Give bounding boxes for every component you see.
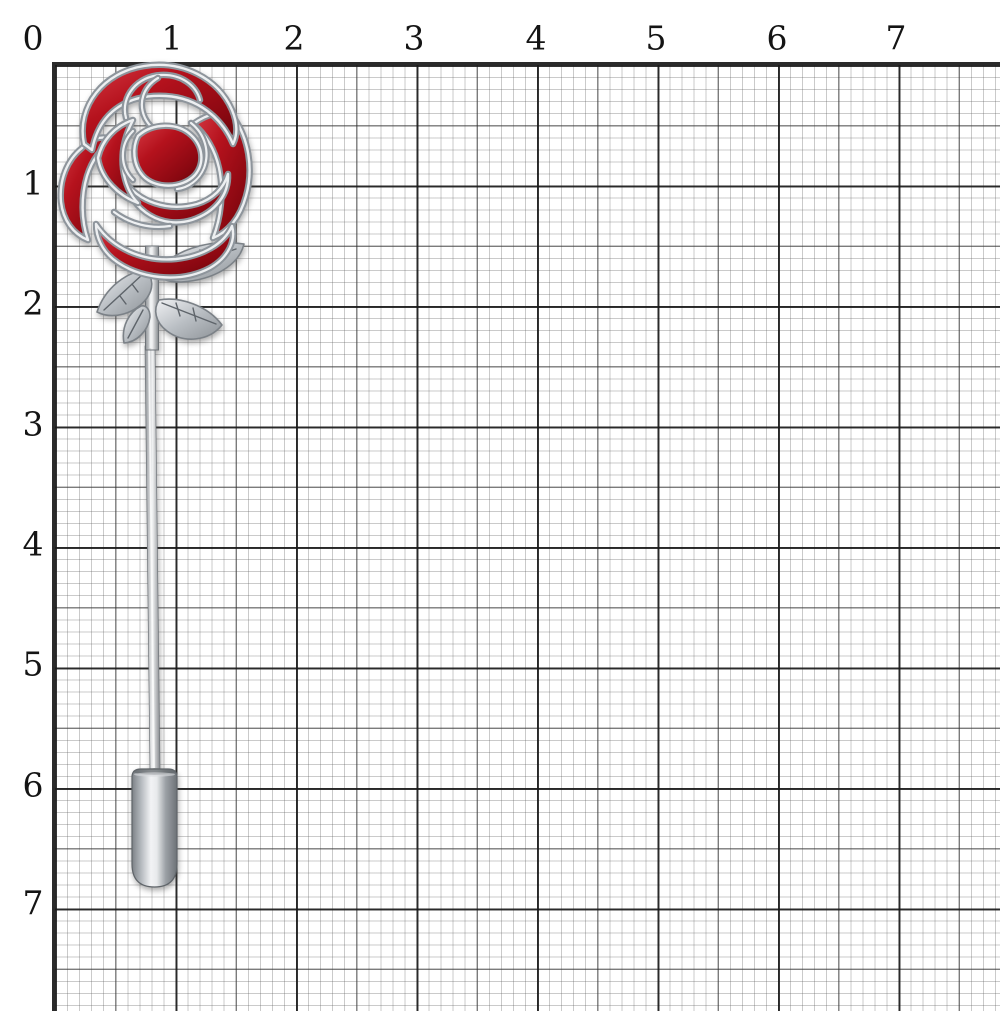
product-measurement-photo: 0 1 2 3 4 5 6 7 1 2 3 4 5 6 7	[0, 0, 1000, 1011]
pin-needle	[145, 346, 160, 770]
pin-clutch-cap	[132, 768, 177, 887]
ruler-top-label-0: 0	[23, 22, 44, 55]
ruler-top-label-1: 1	[162, 22, 183, 55]
ruler-top-label-6: 6	[767, 22, 788, 55]
ruler-top-label-4: 4	[526, 22, 547, 55]
ruler-top-label-2: 2	[284, 22, 305, 55]
ruler-top-label-5: 5	[646, 22, 667, 55]
ruler-top-label-3: 3	[404, 22, 425, 55]
ruler-top-label-7: 7	[886, 22, 907, 55]
rose-stick-pin-photo	[40, 60, 270, 905]
